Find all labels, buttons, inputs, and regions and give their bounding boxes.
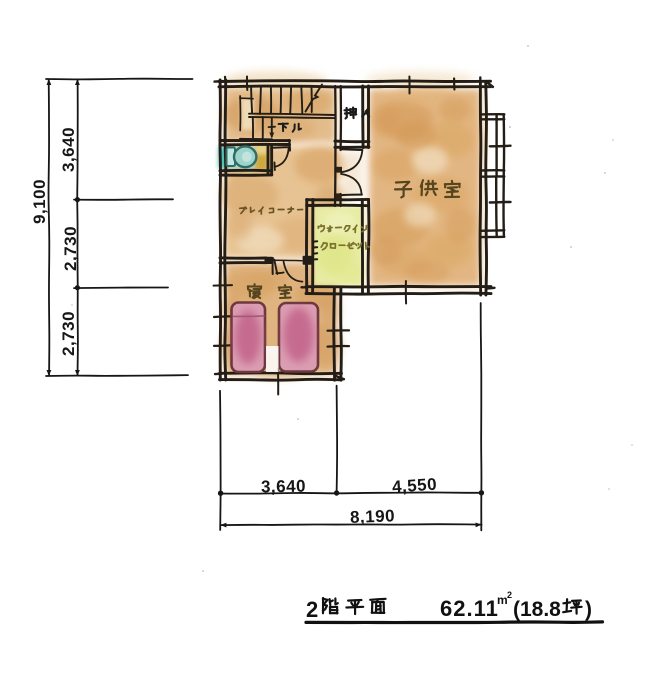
svg-text:(18.8: (18.8 <box>513 598 561 621</box>
svg-text:2: 2 <box>306 597 318 622</box>
svg-text:4,550: 4,550 <box>391 475 437 497</box>
svg-text:2,730: 2,730 <box>59 311 78 356</box>
svg-text:): ) <box>585 598 592 621</box>
svg-text:8,190: 8,190 <box>350 506 396 527</box>
svg-text:2: 2 <box>507 590 512 600</box>
svg-text:9,100: 9,100 <box>30 179 49 224</box>
svg-text:62.11: 62.11 <box>440 596 499 621</box>
svg-text:3,640: 3,640 <box>59 127 78 172</box>
svg-text:3,640: 3,640 <box>261 477 306 497</box>
svg-text:2,730: 2,730 <box>61 226 80 271</box>
